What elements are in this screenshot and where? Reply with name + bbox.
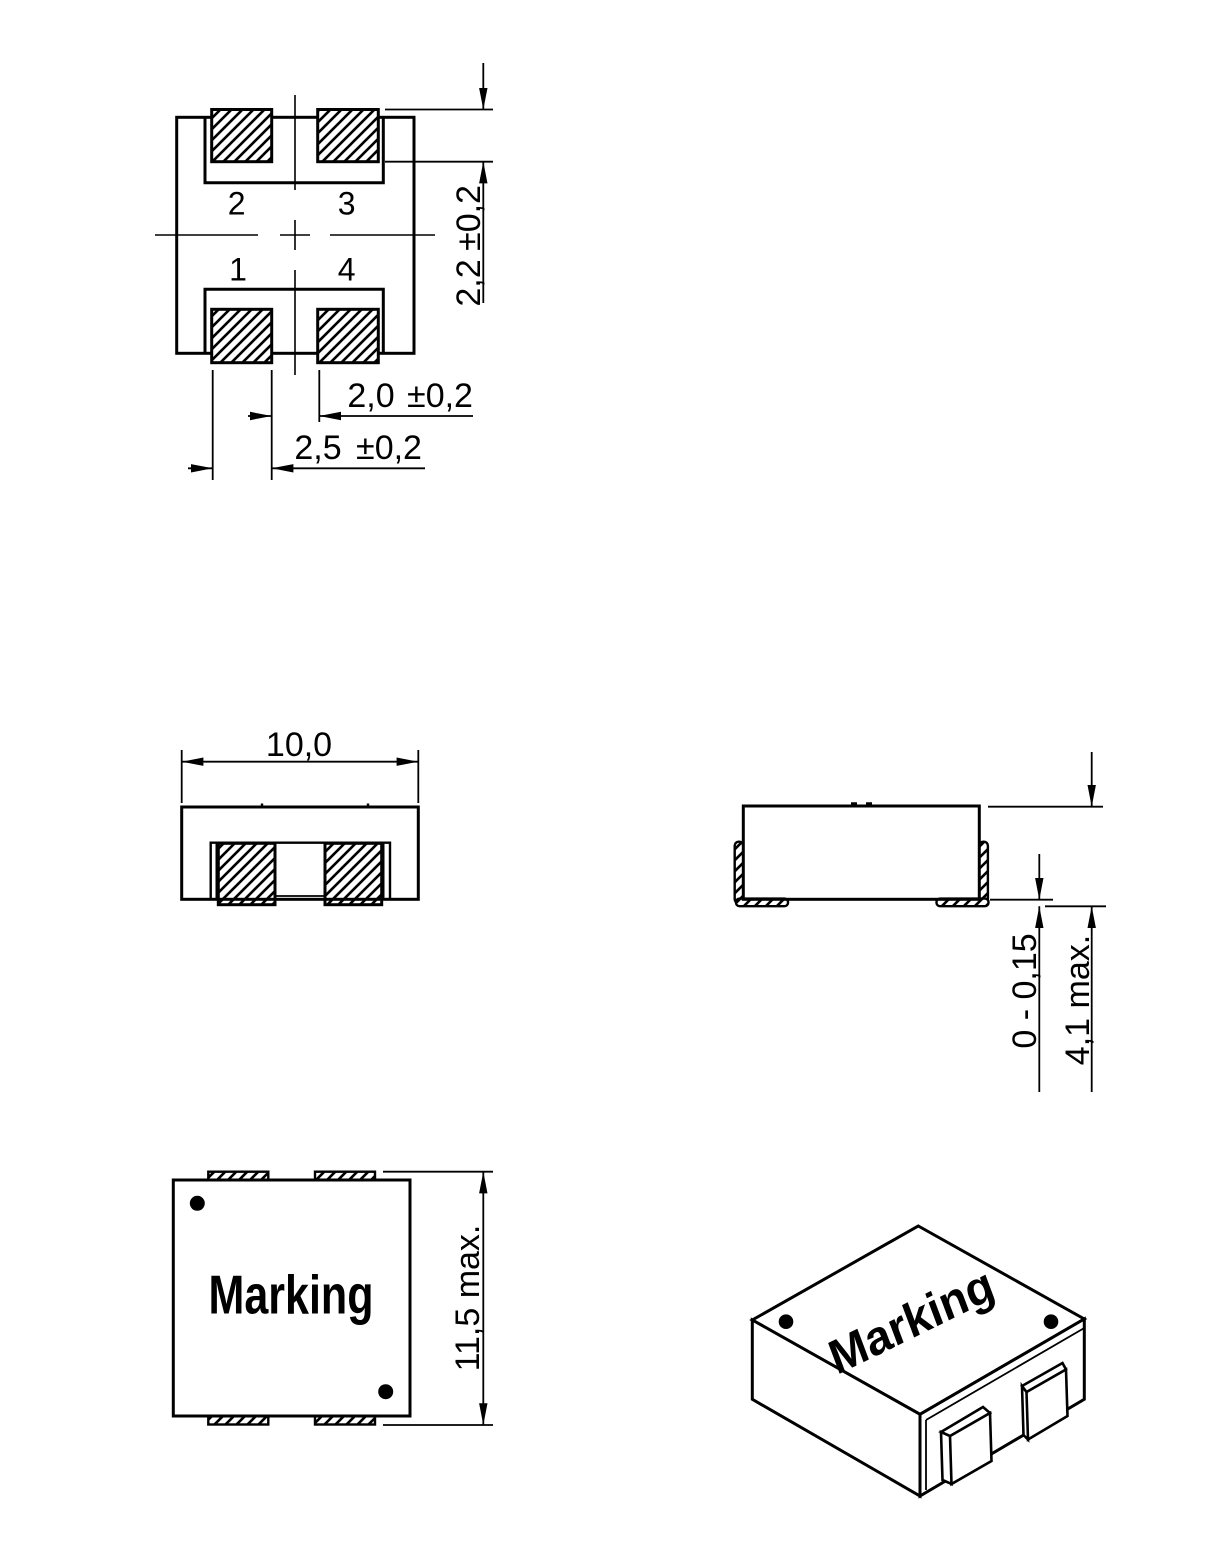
index-dot-right (1044, 1314, 1059, 1329)
dim-overall-height: 4,1 max. (1059, 935, 1097, 1065)
dim-pad-height-tolerance: ±0,2 (450, 185, 488, 251)
pin-label-1: 1 (229, 252, 247, 288)
index-dot-left (779, 1314, 794, 1329)
dimension-arrows (250, 412, 341, 420)
index-dot-bottom-right (378, 1384, 393, 1399)
pad-4-hatched (318, 309, 379, 362)
pin-label-2: 2 (228, 186, 246, 222)
terminal-right-hatched (325, 843, 382, 904)
pad-3-hatched (318, 110, 379, 162)
component-dimension-drawing: 2 3 1 4 2,2 ±0,2 2,0 ±0,2 2,5 ±0,2 (0, 0, 1229, 1558)
dimension-arrows (1035, 878, 1043, 928)
drawing-page: 2 3 1 4 2,2 ±0,2 2,0 ±0,2 2,5 ±0,2 (0, 0, 1229, 1558)
dim-overall-length: 11,5 max. (449, 1225, 487, 1372)
dim-pad-width-value: 2,5 (294, 429, 341, 467)
pin-label-4: 4 (338, 252, 356, 288)
dim-pad-gap-value: 2,0 (347, 377, 394, 415)
pad-2-hatched (212, 110, 272, 162)
dimension-arrows (479, 88, 487, 183)
dimension-arrows (191, 464, 293, 472)
land-pattern-view: 2 3 1 4 2,2 ±0,2 2,0 ±0,2 2,5 ±0,2 (155, 63, 493, 480)
pin-label-3: 3 (338, 186, 356, 222)
isometric-view: Marking (752, 1226, 1084, 1496)
pad-1-hatched (212, 309, 272, 362)
marking-label: Marking (209, 1264, 374, 1326)
dim-standoff: 0 - 0,15 (1006, 933, 1044, 1048)
front-view: 10,0 (182, 726, 419, 905)
dim-pad-width-tolerance: ±0,2 (356, 429, 422, 467)
terminal-left-hatched (218, 843, 275, 904)
index-dot-top-left (190, 1196, 205, 1211)
dim-pad-gap-tolerance: ±0,2 (407, 377, 473, 415)
side-view: 0 - 0,15 4,1 max. (735, 752, 1106, 1092)
dim-pad-height-value: 2,2 (450, 259, 488, 306)
body-outline (743, 806, 979, 899)
dim-body-width: 10,0 (266, 726, 332, 764)
dimension-pad-height: 2,2 ±0,2 (385, 63, 493, 307)
dimension-body-width: 10,0 (182, 726, 419, 803)
centerlines (155, 95, 435, 375)
top-view: Marking 11,5 max. (173, 1172, 493, 1425)
